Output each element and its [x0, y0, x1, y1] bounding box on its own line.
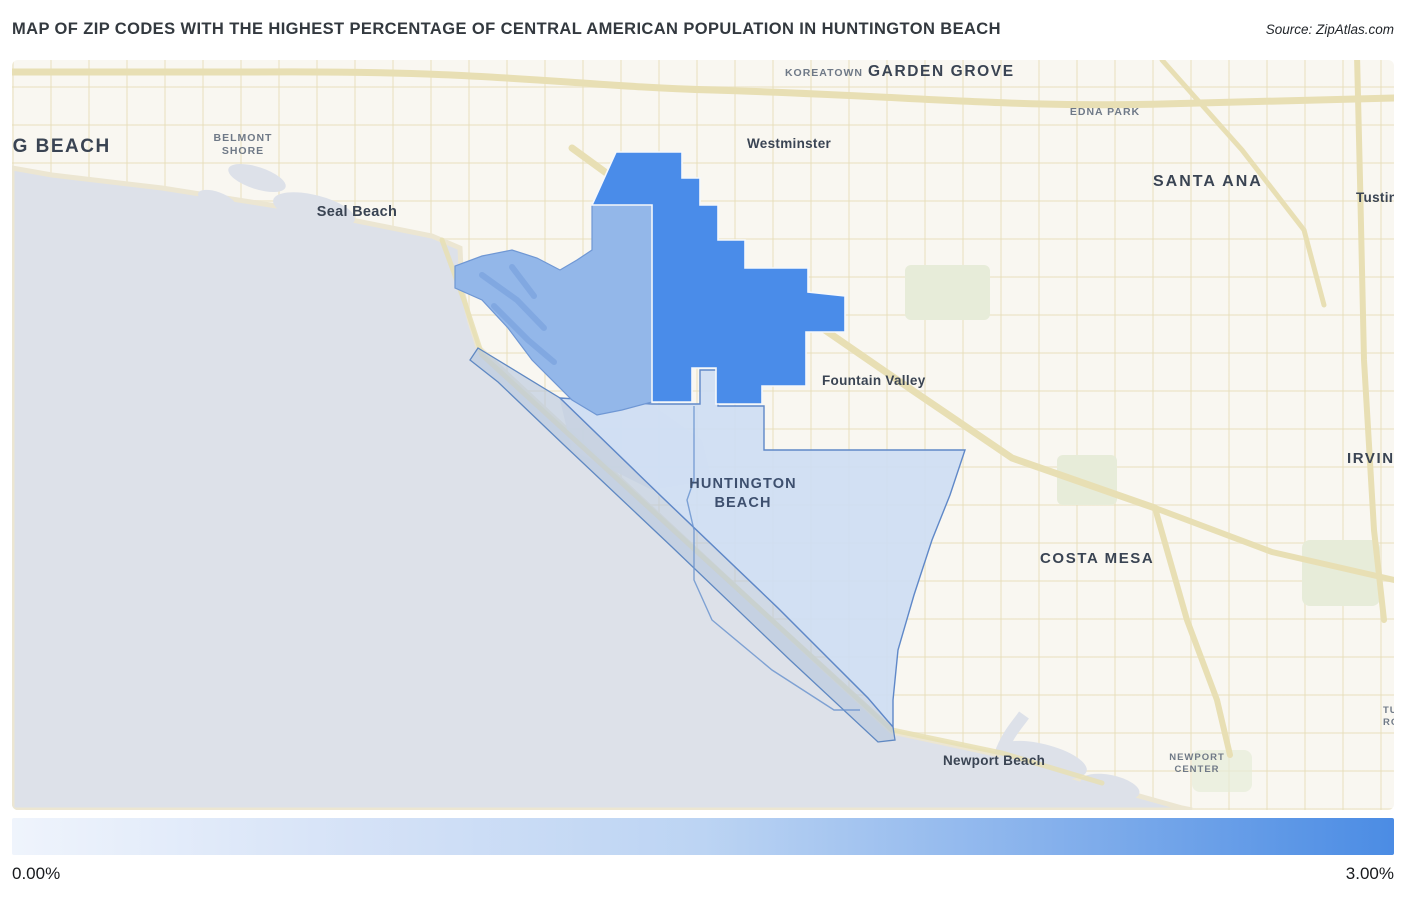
- label-turtle-rock: TURTLE ROCK: [1383, 705, 1394, 729]
- page-title: MAP OF ZIP CODES WITH THE HIGHEST PERCEN…: [12, 20, 1001, 39]
- label-fountain-valley: Fountain Valley: [822, 373, 926, 389]
- park-areas: [905, 265, 1380, 792]
- label-huntington-beach: HUNTINGTON BEACH: [689, 475, 796, 512]
- page: MAP OF ZIP CODES WITH THE HIGHEST PERCEN…: [0, 0, 1406, 899]
- label-santa-ana: SANTA ANA: [1153, 172, 1263, 191]
- source-attribution: Source: ZipAtlas.com: [1266, 22, 1394, 37]
- header: MAP OF ZIP CODES WITH THE HIGHEST PERCEN…: [12, 0, 1394, 58]
- label-costa-mesa: COSTA MESA: [1040, 550, 1154, 568]
- label-edna-park: EDNA PARK: [1070, 106, 1140, 119]
- label-westminster: Westminster: [747, 136, 831, 152]
- label-koreatown: KOREATOWN: [785, 67, 863, 80]
- label-tustin: Tustin: [1356, 190, 1394, 206]
- legend-labels: 0.00% 3.00%: [12, 864, 1394, 884]
- legend-gradient-bar: [12, 818, 1394, 855]
- label-newport-center: NEWPORT CENTER: [1169, 752, 1225, 776]
- legend-min-label: 0.00%: [12, 864, 60, 884]
- label-irvine: IRVINE: [1347, 450, 1394, 468]
- label-seal-beach: Seal Beach: [317, 204, 397, 221]
- label-garden-grove: GARDEN GROVE: [868, 63, 1015, 82]
- label-newport-beach: Newport Beach: [943, 753, 1045, 769]
- label-long-beach: LONG BEACH: [12, 136, 111, 159]
- choropleth-map[interactable]: LONG BEACH BELMONT SHORE Seal Beach KORE…: [12, 60, 1394, 810]
- legend-max-label: 3.00%: [1346, 864, 1394, 884]
- label-belmont-shore: BELMONT SHORE: [214, 132, 273, 158]
